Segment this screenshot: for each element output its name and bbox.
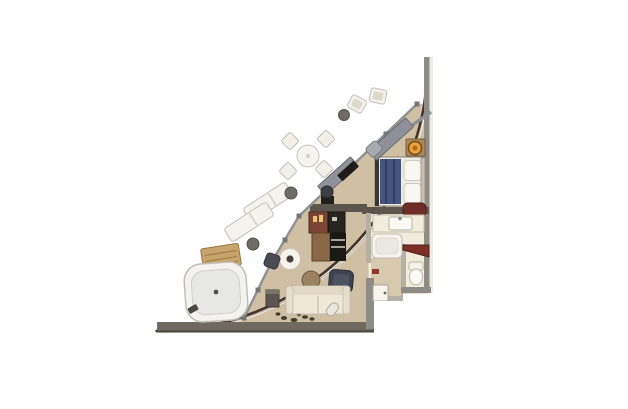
vanity-desk-stool	[321, 186, 333, 198]
decor-pebble-6	[297, 314, 301, 317]
bed-pillow-1	[404, 161, 421, 181]
sofa-arm-left	[286, 286, 293, 314]
hottub-center-drain	[214, 290, 219, 295]
exterior-mask-3	[430, 293, 444, 348]
decor-pebble-4	[276, 312, 281, 315]
bed-foot-edge	[375, 157, 379, 206]
lounger-side-table-2	[247, 238, 259, 250]
balcony-side-table	[339, 110, 350, 121]
decor-pebble-3	[302, 315, 308, 319]
bed-pillow-2	[404, 184, 421, 204]
cabinet-black-top-item	[332, 217, 337, 221]
sofa-arm-right	[343, 286, 350, 314]
bed-headboard	[421, 158, 425, 205]
bathroom-faucet	[398, 217, 401, 220]
exterior-mask-2	[374, 301, 404, 351]
wall-toilet-bottom	[401, 287, 431, 293]
pedestal-table-base	[286, 255, 293, 262]
suite-floorplan-rendering	[0, 0, 628, 409]
wall-bottom-shadow	[157, 331, 375, 333]
lounger-side-table-1	[285, 187, 297, 199]
entry-door-handle	[384, 292, 387, 295]
sofa-back	[286, 286, 350, 295]
cabinet-wood	[312, 233, 330, 261]
bathroom-red-accent	[372, 269, 379, 274]
minibar-cabinet	[309, 212, 328, 233]
wall-corridor-bottom	[387, 296, 403, 301]
dining-table-center	[306, 154, 310, 158]
wall-right-cap	[430, 57, 434, 293]
bed-bench	[403, 203, 426, 216]
decor-pebble-2	[291, 318, 298, 322]
nightstand-lamp-inner	[412, 145, 417, 150]
bed-runner	[380, 159, 401, 204]
decor-pebble-5	[309, 317, 314, 320]
wall-bottom	[157, 322, 375, 331]
cabinet-black-top	[328, 212, 345, 233]
floorplan-page	[0, 0, 628, 409]
side-unit-top	[266, 290, 279, 294]
bathtub-inner	[376, 238, 398, 254]
wall-bathroom-left	[366, 213, 371, 263]
dining-chair-2	[317, 130, 335, 148]
toilet-bowl	[410, 269, 423, 285]
dining-chair-3	[279, 162, 297, 180]
wall-bedroom-living	[310, 204, 367, 212]
decor-pebble-1	[281, 316, 287, 320]
dining-chair-1	[281, 132, 299, 150]
